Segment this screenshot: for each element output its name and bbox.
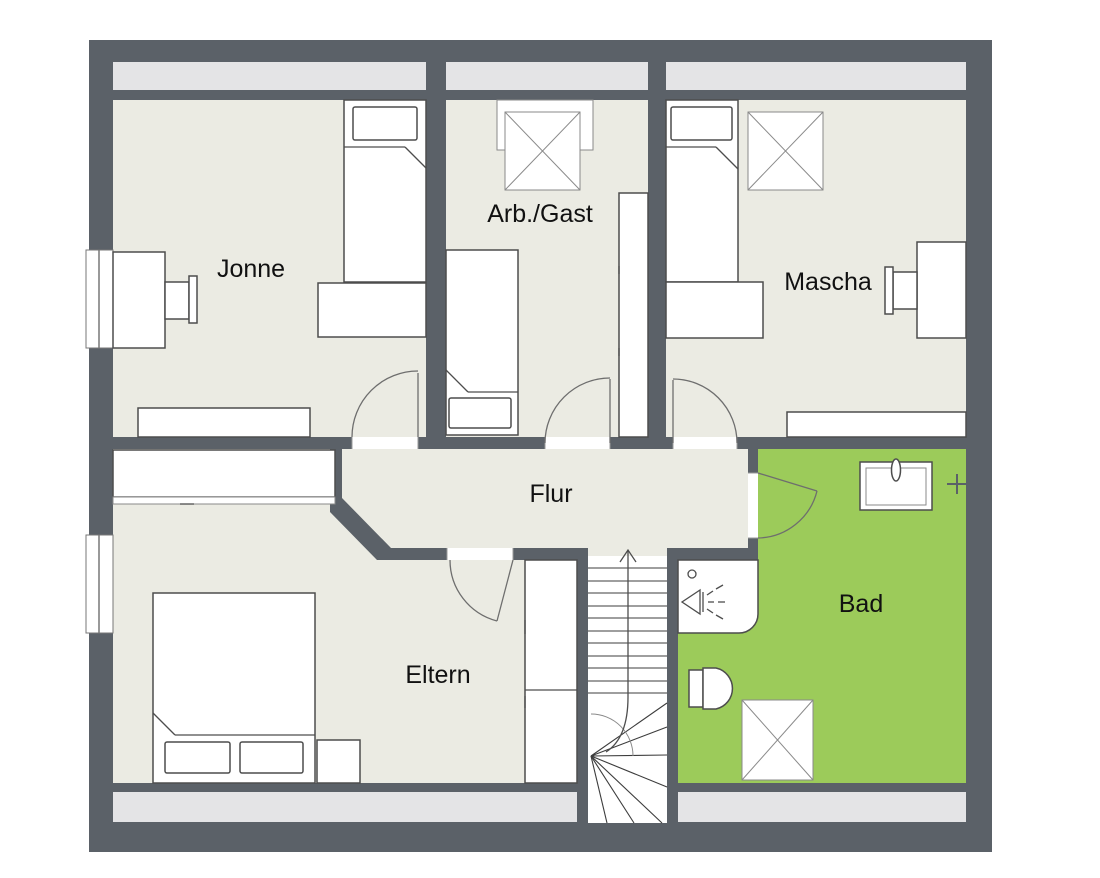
room-label-eltern: Eltern [405,661,470,689]
wardrobe-icon [525,560,577,783]
roof-window-icon [748,112,823,190]
wardrobe-icon [113,450,335,504]
wall-outer-bottom [89,822,992,852]
chair-icon [165,276,197,323]
pillow-icon [165,742,230,773]
faucet-icon [892,459,901,481]
pillow-icon [240,742,303,773]
pillow-icon [449,398,511,428]
wall-stair-right [667,548,678,823]
pillow-icon [671,107,732,140]
shower-icon [678,560,758,633]
wall-main-horizontal [113,437,966,449]
toilet-icon [689,668,732,709]
desk-icon [917,242,966,338]
sideboard-icon [787,412,966,437]
room-label-jonne: Jonne [217,255,285,283]
washbasin-icon [860,459,932,510]
dresser-icon [318,283,426,337]
room-label-mascha: Mascha [784,268,872,296]
wall-arbgast-mascha [648,62,666,449]
double-bed-icon [153,593,315,783]
roof-window-icon [505,112,580,190]
wall-outer-left [89,40,113,852]
staircase [588,550,667,823]
room-label-bad: Bad [839,590,883,618]
desk-icon [113,252,165,348]
wall-stair-left [577,548,588,823]
wall-outer-top [89,40,992,62]
pillow-icon [353,107,417,140]
sideboard-icon [138,408,310,437]
room-label-flur: Flur [529,480,572,508]
wall-jonne-arbgast [426,62,446,449]
chair-icon [885,267,917,314]
wall-outer-right [966,40,992,852]
room-label-arbgast: Arb./Gast [487,200,593,228]
nightstand-icon [317,740,360,783]
floor-plan-page: Jonne Arb./Gast [0,0,1100,878]
roof-window-icon [742,700,813,780]
wardrobe-icon [619,193,648,437]
dresser-icon [666,282,763,338]
floor-plan-drawing: Jonne Arb./Gast [0,0,1100,878]
